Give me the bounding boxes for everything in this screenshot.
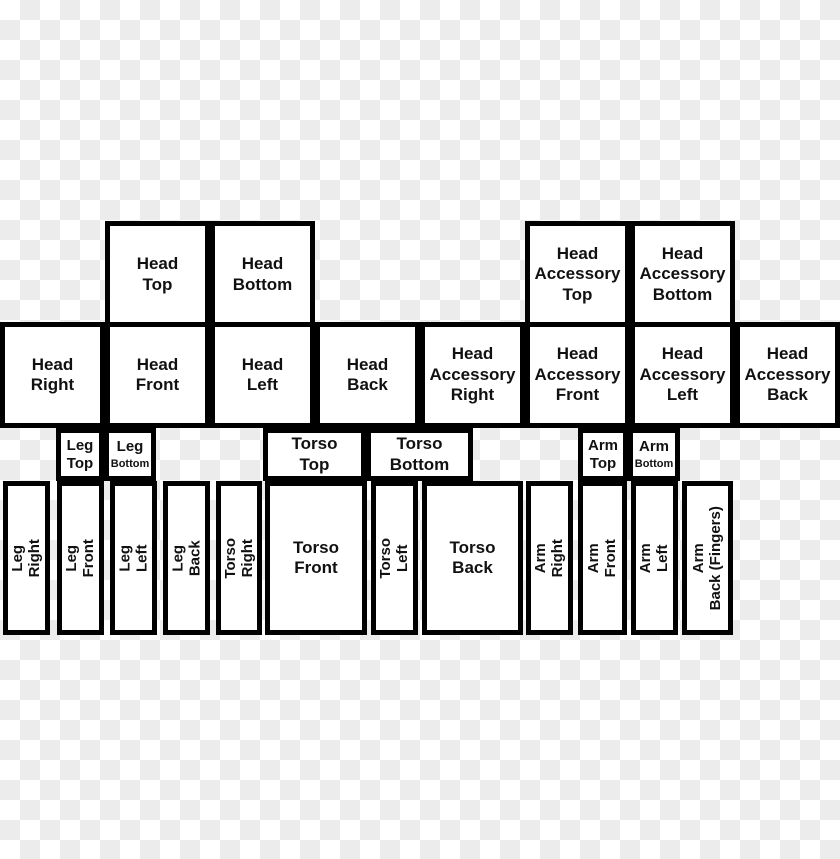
cell-head-accessory-front: Head Accessory Front (525, 322, 630, 428)
cell-label: Leg Bottom (104, 437, 157, 472)
cell-head-accessory-top: Head Accessory Top (525, 221, 630, 328)
cell-torso-left: Torso Left (371, 481, 418, 635)
cell-head-accessory-right: Head Accessory Right (420, 322, 525, 428)
cell-head-bottom: Head Bottom (210, 221, 315, 328)
cell-label: Leg Top (67, 437, 94, 473)
cell-label: Leg Right (9, 539, 44, 577)
cell-torso-front: Torso Front (265, 481, 367, 635)
cell-torso-back: Torso Back (422, 481, 523, 635)
cell-label: Arm Top (588, 437, 618, 473)
cell-arm-right: Arm Right (526, 481, 573, 635)
cell-leg-right: Leg Right (3, 481, 50, 635)
cell-label: Head Front (136, 355, 179, 396)
cell-label: Arm Left (637, 543, 672, 573)
cell-label: Leg Back (169, 540, 204, 576)
cell-label: Head Accessory Back (744, 344, 830, 405)
cell-label: Torso Bottom (390, 434, 449, 475)
cell-label: Torso Left (377, 538, 412, 579)
cell-label: Torso Top (292, 434, 338, 475)
cell-torso-right: Torso Right (216, 481, 262, 635)
cell-label: Head Top (137, 254, 179, 295)
cell-label: Arm Bottom (628, 437, 681, 472)
cell-label: Arm Right (532, 539, 567, 577)
cell-head-top: Head Top (105, 221, 210, 328)
cell-arm-back-fingers: Arm Back (Fingers) (682, 481, 733, 635)
cell-leg-front: Leg Front (57, 481, 104, 635)
cell-label: Head Accessory Front (534, 344, 620, 405)
cell-head-accessory-bottom: Head Accessory Bottom (630, 221, 735, 328)
cell-label: Head Accessory Left (639, 344, 725, 405)
cell-label: Torso Back (450, 538, 496, 579)
cell-arm-bottom: Arm Bottom (628, 428, 680, 481)
cell-arm-top: Arm Top (578, 428, 628, 481)
cell-label: Leg Left (116, 544, 151, 572)
cell-torso-top: Torso Top (263, 428, 366, 481)
cell-label: Head Bottom (233, 254, 292, 295)
cell-label: Torso Front (293, 538, 339, 579)
cell-head-accessory-left: Head Accessory Left (630, 322, 735, 428)
cell-leg-back: Leg Back (163, 481, 210, 635)
cell-label: Head Accessory Right (429, 344, 515, 405)
cell-head-left: Head Left (210, 322, 315, 428)
cell-torso-bottom: Torso Bottom (366, 428, 473, 481)
cell-label: Head Accessory Bottom (639, 244, 725, 305)
cell-head-accessory-back: Head Accessory Back (735, 322, 840, 428)
cell-label: Head Accessory Top (534, 244, 620, 305)
cell-head-front: Head Front (105, 322, 210, 428)
cell-label: Head Left (242, 355, 284, 396)
cell-leg-bottom: Leg Bottom (104, 428, 156, 481)
cell-label: Head Back (347, 355, 389, 396)
cell-leg-left: Leg Left (110, 481, 157, 635)
cell-arm-left: Arm Left (631, 481, 678, 635)
cell-head-right: Head Right (0, 322, 105, 428)
cell-leg-top: Leg Top (56, 428, 104, 481)
texture-map-diagram: Head Top Head Bottom Head Accessory Top … (0, 0, 840, 859)
cell-label: Leg Front (63, 539, 98, 577)
cell-label: Head Right (31, 355, 74, 396)
cell-label: Arm Back (Fingers) (690, 506, 725, 610)
cell-label: Arm Front (585, 539, 620, 577)
cell-label: Torso Right (222, 538, 257, 579)
cell-head-back: Head Back (315, 322, 420, 428)
cell-arm-front: Arm Front (578, 481, 627, 635)
